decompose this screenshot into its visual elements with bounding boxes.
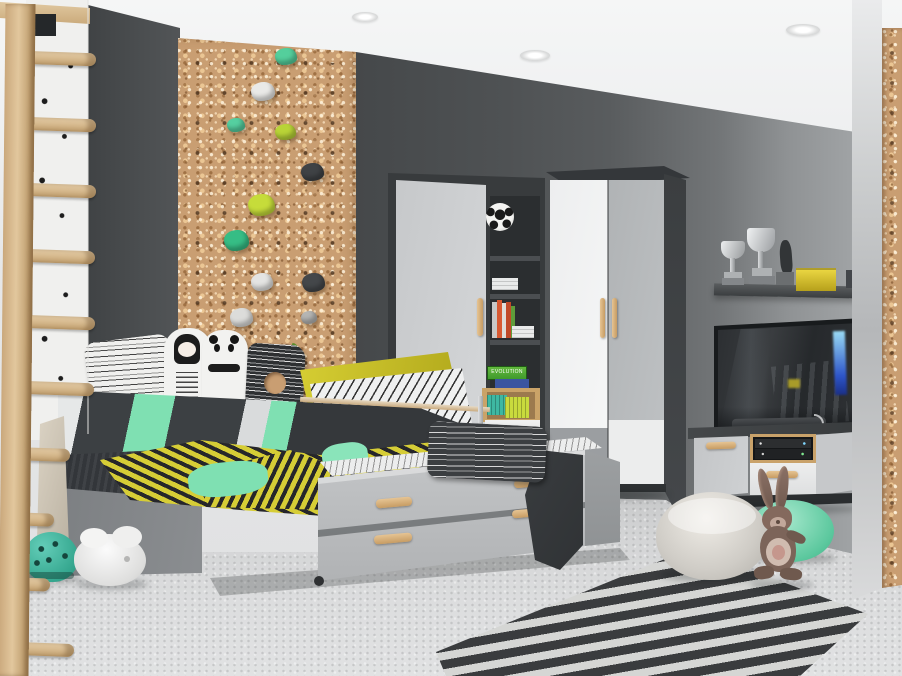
panda-ear [209, 335, 218, 344]
climbing-hold [230, 308, 253, 327]
ceiling-light-icon [352, 12, 378, 22]
bowl-toy [74, 534, 146, 586]
screen-yellow-smudge [788, 379, 800, 388]
wardrobe-door-gap [607, 180, 609, 486]
white-books [512, 326, 534, 338]
bookcase-door-handle [477, 298, 483, 336]
wall-corner-right [852, 0, 882, 600]
panda-arm [208, 364, 240, 372]
soccer-ball [486, 203, 514, 231]
bedroom-photo: EVOLUTION [0, 0, 902, 676]
bunny-nose [776, 520, 780, 524]
climbing-hold [248, 194, 275, 216]
bunny-leg [753, 565, 775, 581]
climbing-hold [251, 273, 273, 291]
game-box-label: EVOLUTION [488, 367, 526, 378]
trophy-large-stem [758, 251, 763, 269]
climbing-hold [251, 82, 275, 101]
bunny-ear [755, 467, 776, 510]
trophy-small-stem [730, 258, 735, 272]
bookcase-shelf-board [490, 340, 540, 345]
panda-eye [228, 344, 234, 352]
ceiling-light-icon [520, 50, 550, 61]
av-receiver [755, 439, 811, 448]
tv-stand-side [816, 432, 856, 496]
figurine-base [776, 272, 794, 285]
climbing-hold [302, 273, 325, 292]
trophy-large-base [749, 276, 775, 284]
bunny-leg [779, 567, 802, 581]
bunny-toy [750, 468, 814, 590]
letter-pillow-hole [263, 371, 286, 394]
ceiling-light-icon [786, 24, 820, 36]
screen-blue-streak [833, 331, 847, 395]
bookcase-shelf-board [490, 256, 540, 261]
teal-helmet [24, 532, 78, 582]
climbing-hold [275, 124, 296, 140]
panda-eye [214, 344, 220, 352]
panda-ear [230, 335, 239, 344]
wardrobe-side [662, 170, 690, 542]
doll-dress [176, 372, 198, 398]
game-box: EVOLUTION [487, 366, 527, 380]
trophy-large-base [752, 268, 772, 276]
trundle-wheel [314, 576, 324, 586]
bowl-rim-lobe [80, 528, 108, 548]
climbing-hold [301, 311, 317, 324]
teal-crate [487, 395, 507, 415]
bowl-hole [124, 556, 130, 562]
yellow-crate [505, 397, 529, 418]
climbing-hold [301, 163, 324, 181]
star-wall [26, 0, 88, 440]
bunny-shadow [750, 580, 814, 590]
cork-pillar-holes [882, 28, 902, 588]
climbing-hold [224, 230, 249, 251]
climbing-hold [227, 118, 245, 132]
bookcase-shelf-board [490, 294, 540, 299]
charcoal-cushion [427, 421, 548, 483]
white-books [492, 278, 518, 290]
yellow-radio [796, 268, 836, 291]
bowl-rim-lobe [112, 526, 142, 548]
doll-face [178, 342, 196, 357]
wardrobe-handle-left [600, 298, 605, 338]
wardrobe-handle-right [612, 298, 617, 338]
bunny-belly-patch [772, 545, 785, 560]
tv-stand-door-handle [706, 441, 736, 449]
trundle-side [582, 446, 622, 550]
trophy-large [747, 228, 775, 252]
trophy-small-base [722, 278, 744, 285]
beige-pouf-seam [668, 498, 756, 534]
climbing-hold [275, 48, 297, 65]
av-receiver [755, 449, 811, 459]
